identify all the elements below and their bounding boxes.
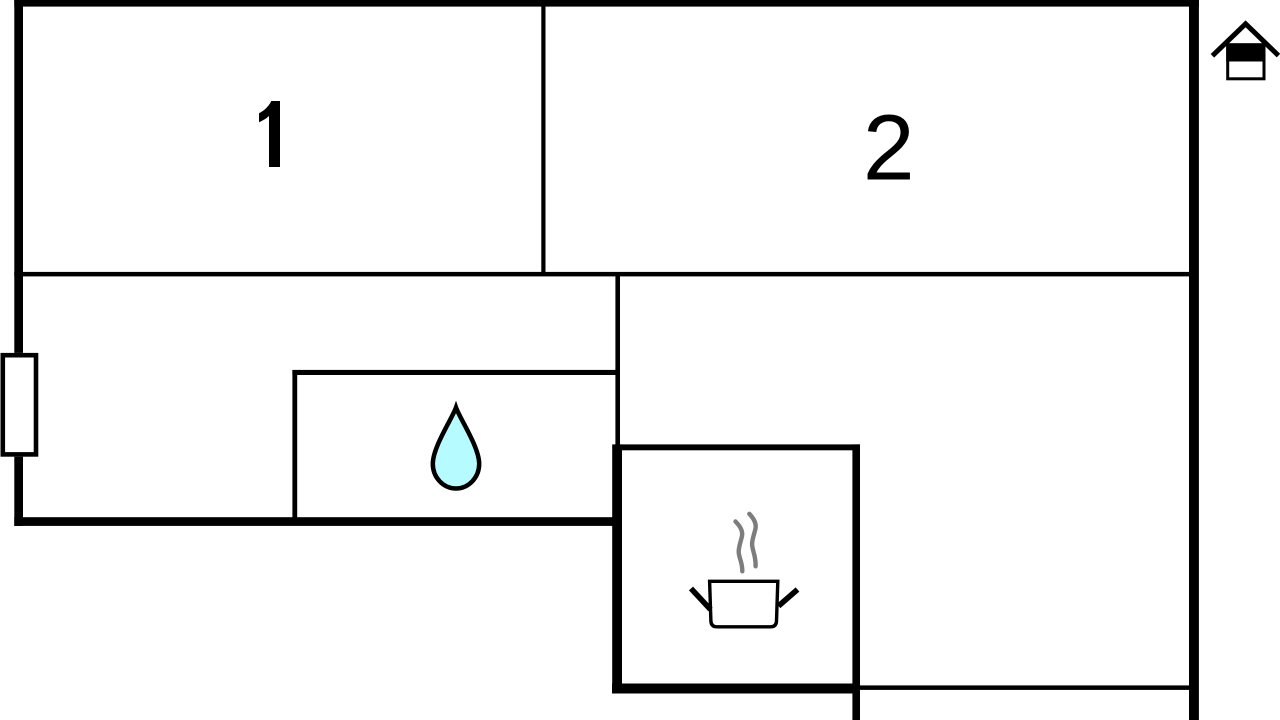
svg-text:2: 2 — [863, 96, 915, 200]
